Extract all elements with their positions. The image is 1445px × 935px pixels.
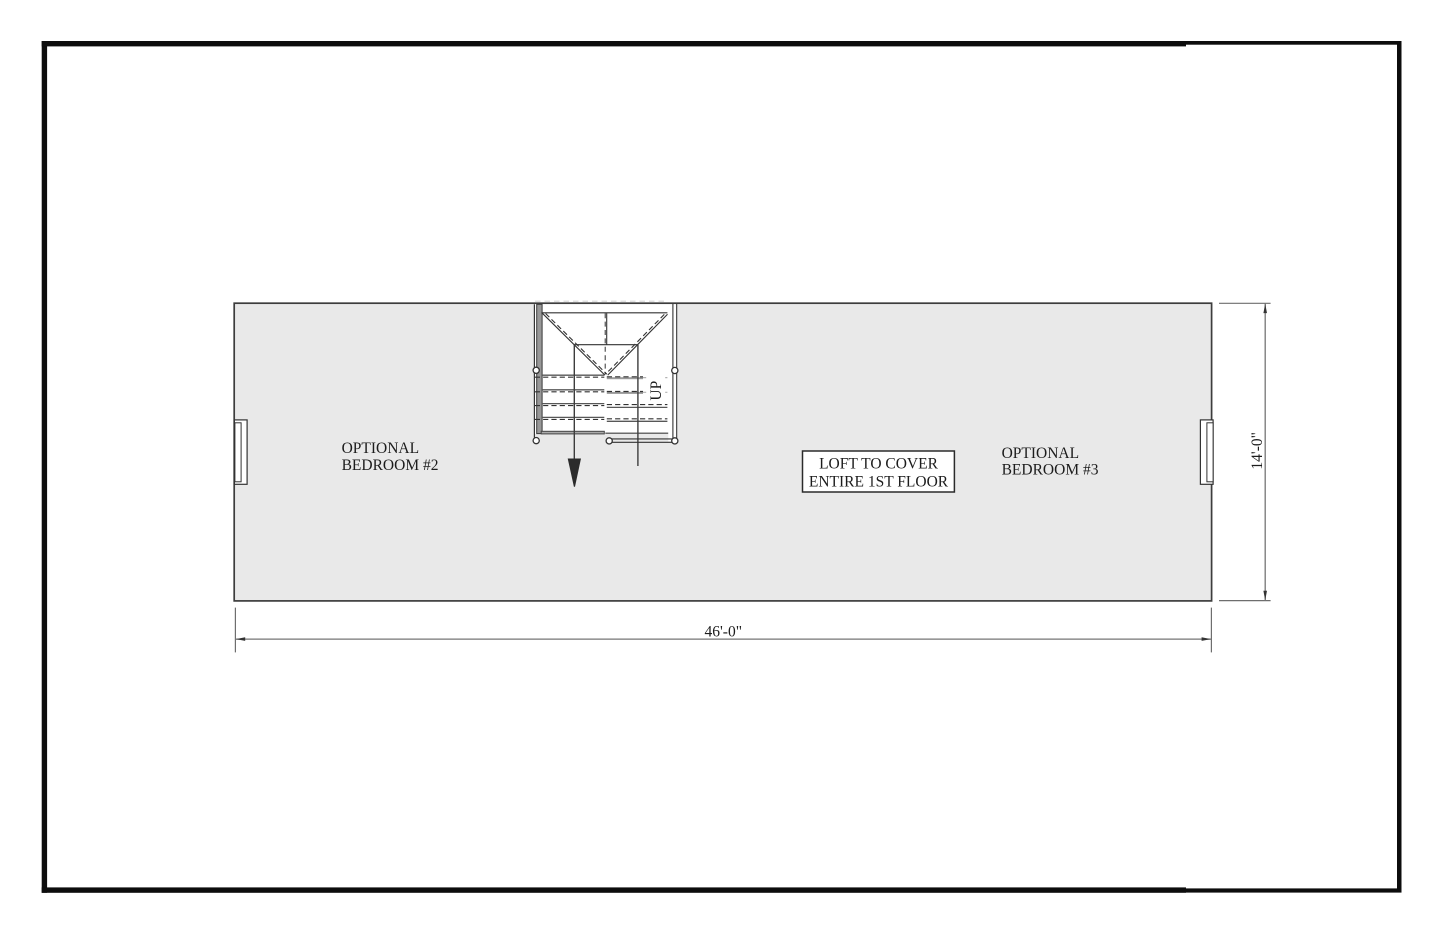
svg-text:BEDROOM #2: BEDROOM #2 <box>342 457 439 474</box>
svg-text:14'-0": 14'-0" <box>1249 432 1266 470</box>
svg-text:ENTIRE 1ST FLOOR: ENTIRE 1ST FLOOR <box>809 473 949 490</box>
svg-text:UP: UP <box>648 381 665 401</box>
svg-text:46'-0": 46'-0" <box>705 623 743 640</box>
svg-text:LOFT TO COVER: LOFT TO COVER <box>819 455 939 472</box>
svg-text:OPTIONAL: OPTIONAL <box>342 440 420 457</box>
svg-text:BEDROOM #3: BEDROOM #3 <box>1002 462 1099 479</box>
svg-text:OPTIONAL: OPTIONAL <box>1002 445 1080 462</box>
